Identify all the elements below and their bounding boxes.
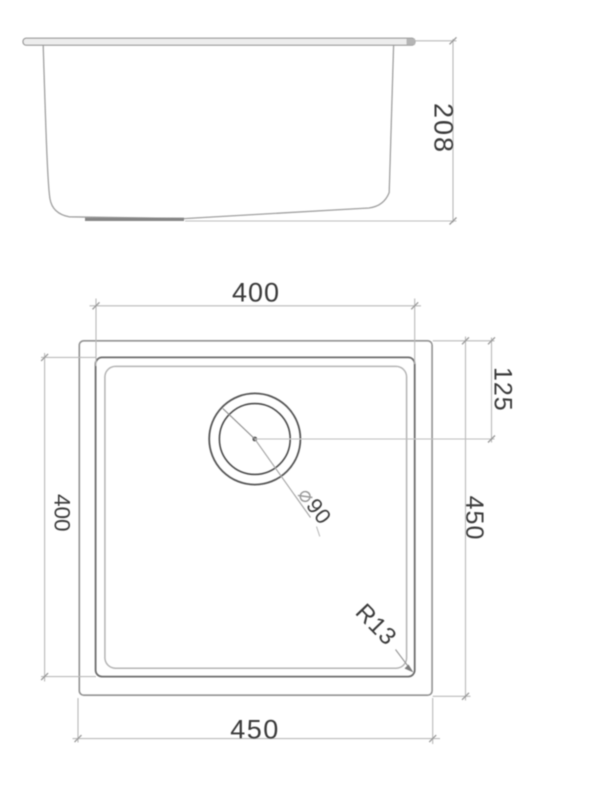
- svg-text:450: 450: [460, 496, 488, 541]
- svg-text:400: 400: [49, 494, 74, 532]
- svg-text:R13: R13: [350, 599, 402, 652]
- svg-text:450: 450: [230, 715, 280, 745]
- svg-text:400: 400: [232, 278, 280, 308]
- svg-text:⌀90: ⌀90: [293, 483, 336, 529]
- svg-text:208: 208: [429, 103, 459, 154]
- svg-text:125: 125: [489, 367, 517, 412]
